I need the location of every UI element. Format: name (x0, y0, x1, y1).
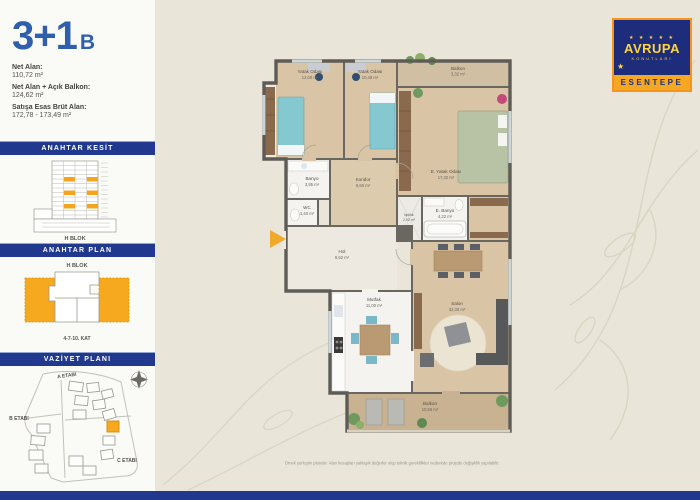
etap-a-label: A ETABI (57, 372, 78, 381)
sidebar: 3+1 B Net Alan: 110,72 m² Net Alan + Açı… (0, 0, 155, 500)
svg-text:11,00 m²: 11,00 m² (366, 303, 383, 308)
svg-text:Yatak Odası: Yatak Odası (298, 69, 323, 74)
net-balcony-area-label: Net Alan + Açık Balkon: (12, 84, 147, 91)
svg-text:10,48 m²: 10,48 m² (362, 75, 379, 80)
title-main: 3+1 (12, 16, 77, 56)
room-label: Banyo3,95 m² (305, 176, 320, 187)
leaf-decor-right (500, 40, 700, 490)
section-header-anahtar-plan: ANAHTAR PLAN (0, 243, 155, 257)
svg-text:Salon: Salon (451, 301, 463, 306)
logo-star-icon: ★ (617, 62, 624, 71)
svg-text:3,32 m²: 3,32 m² (451, 72, 466, 77)
svg-text:Banyo: Banyo (305, 176, 318, 181)
section-header-vaziyet-plani: VAZİYET PLANI (0, 352, 155, 366)
svg-text:E. Yatak Odası: E. Yatak Odası (431, 169, 461, 174)
logo-brand-sub: KONUTLARI (632, 56, 673, 61)
svg-text:Balkon: Balkon (451, 66, 465, 71)
apartment-type-title: 3+1 B (12, 16, 95, 56)
room-label: Balkon3,32 m² (451, 66, 466, 77)
entrance-arrow-icon (270, 230, 286, 249)
gross-area-value: 172,78 - 173,49 m² (12, 112, 147, 119)
svg-text:3,95 m²: 3,95 m² (305, 182, 320, 187)
key-section-diagram: H BLOK (22, 157, 132, 241)
logo-stars-icon: ★ ★ ★ ★ ★ (629, 35, 675, 41)
logo-project-name: ESENTEPE (614, 75, 690, 90)
logo-brand-name: AVRUPA (624, 42, 680, 55)
net-area-value: 110,72 m² (12, 72, 147, 79)
highlighted-block (107, 421, 119, 432)
svg-text:12,00 m²: 12,00 m² (302, 75, 319, 80)
svg-text:10,58 m²: 10,58 m² (422, 407, 439, 412)
svg-text:2,52 m²: 2,52 m² (403, 218, 416, 222)
svg-text:9,52 m²: 9,52 m² (335, 255, 350, 260)
svg-text:Balkon: Balkon (423, 401, 437, 406)
gross-area-label: Satışa Esas Brüt Alan: (12, 104, 147, 111)
svg-text:Koridor: Koridor (356, 177, 371, 182)
disclaimer-text: Örnek yerleşim planıdır. Alan hesapları … (256, 462, 528, 466)
title-variant: B (80, 31, 95, 55)
key-section-block-label: H BLOK (64, 236, 85, 241)
svg-text:Işıklık: Işıklık (404, 213, 413, 217)
svg-text:Hol: Hol (339, 249, 346, 254)
key-plan-block-label: H BLOK (66, 263, 87, 269)
svg-text:4,22 m²: 4,22 m² (438, 214, 453, 219)
section-header-anahtar-kesit: ANAHTAR KESİT (0, 141, 155, 155)
svg-text:32,30 m²: 32,30 m² (449, 307, 466, 312)
room-label: E. Banyo4,22 m² (436, 208, 455, 219)
svg-text:WC: WC (303, 205, 311, 210)
net-balcony-area-value: 124,62 m² (12, 92, 147, 99)
key-plan-floor-label: 4-7-10. KAT (63, 336, 90, 342)
svg-text:E. Banyo: E. Banyo (436, 208, 455, 213)
brochure-page: 3+1 B Net Alan: 110,72 m² Net Alan + Açı… (0, 0, 700, 500)
room-label: Koridor8,60 m² (356, 177, 371, 188)
logo-upper: ★ ★ ★ ★ ★ AVRUPA KONUTLARI ★ (614, 20, 690, 75)
svg-text:17,32 m²: 17,32 m² (438, 175, 455, 180)
svg-text:Yatak Odası: Yatak Odası (358, 69, 383, 74)
svg-text:Mutfak: Mutfak (367, 297, 381, 302)
brand-logo: ★ ★ ★ ★ ★ AVRUPA KONUTLARI ★ ESENTEPE (612, 18, 692, 92)
net-area-label: Net Alan: (12, 64, 147, 71)
compass-icon (130, 370, 148, 389)
floor-plan: Yatak Odası12,00 m² Yatak Odası10,48 m² … (262, 53, 512, 463)
key-plan-diagram: H BLOK 4-7-10. KAT (17, 258, 137, 346)
room-label: Mutfak11,00 m² (366, 297, 383, 308)
svg-text:1,40 m²: 1,40 m² (300, 211, 315, 216)
bottom-bar (0, 491, 700, 500)
etap-c-label: C ETABI (117, 458, 137, 464)
svg-text:8,60 m²: 8,60 m² (356, 183, 371, 188)
floor-plan-svg: Yatak Odası12,00 m² Yatak Odası10,48 m² … (262, 53, 512, 463)
area-info: Net Alan: 110,72 m² Net Alan + Açık Balk… (12, 64, 147, 124)
site-plan-diagram: A ETABI B ETABI C ETABI (3, 366, 153, 488)
etap-b-label: B ETABI (9, 416, 29, 422)
room-label: Balkon10,58 m² (422, 401, 439, 412)
